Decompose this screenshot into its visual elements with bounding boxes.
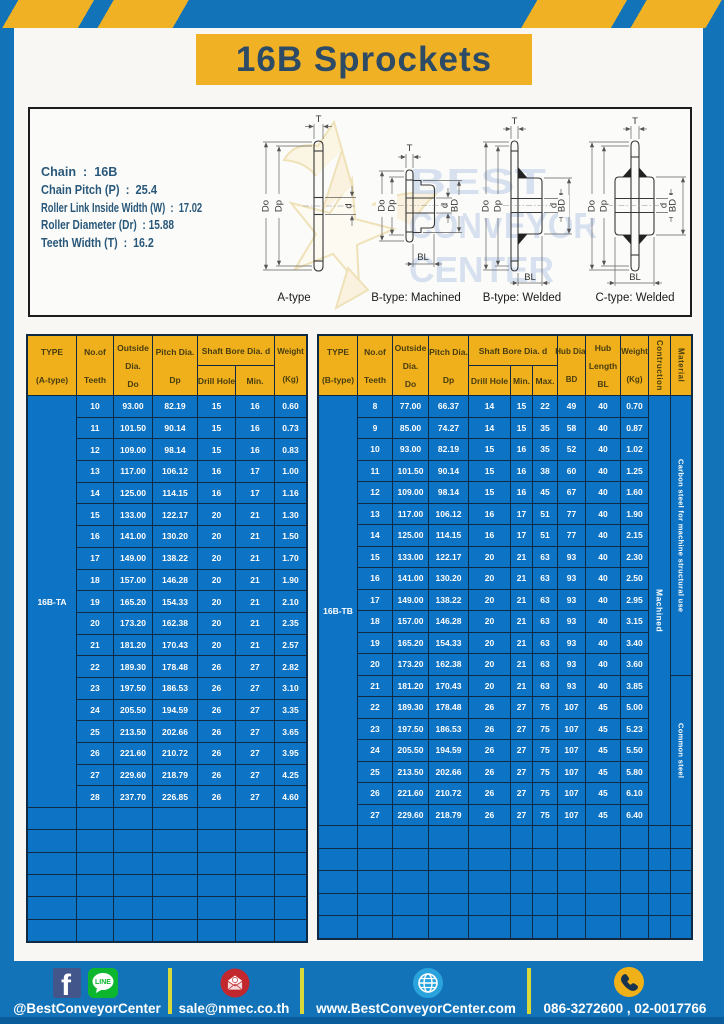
svg-text:d: d bbox=[344, 203, 355, 208]
svg-text:Dp: Dp bbox=[274, 200, 285, 212]
svg-text:B-type: Welded: B-type: Welded bbox=[483, 292, 561, 304]
svg-text:BD: BD bbox=[450, 199, 461, 212]
svg-text:BD: BD bbox=[668, 199, 679, 212]
svg-text:B-type: Machined: B-type: Machined bbox=[371, 292, 461, 304]
svg-text:Do: Do bbox=[587, 200, 598, 212]
svg-text:BL: BL bbox=[629, 272, 641, 283]
svg-text:Do: Do bbox=[261, 200, 272, 212]
svg-text:Dp: Dp bbox=[493, 200, 504, 212]
svg-text:T: T bbox=[316, 114, 322, 125]
svg-text:Dp: Dp bbox=[387, 199, 398, 211]
svg-text:T: T bbox=[407, 143, 413, 154]
svg-text:BL: BL bbox=[417, 252, 429, 263]
svg-text:Do: Do bbox=[481, 200, 492, 212]
svg-text:T: T bbox=[632, 116, 638, 127]
svg-text:BD: BD bbox=[557, 199, 568, 212]
svg-text:C-type: Welded: C-type: Welded bbox=[595, 292, 674, 304]
svg-text:T: T bbox=[512, 116, 518, 127]
svg-text:Dp: Dp bbox=[599, 200, 610, 212]
svg-text:LINE: LINE bbox=[95, 979, 111, 986]
svg-text:A-type: A-type bbox=[277, 292, 310, 304]
svg-text:BL: BL bbox=[524, 272, 536, 283]
